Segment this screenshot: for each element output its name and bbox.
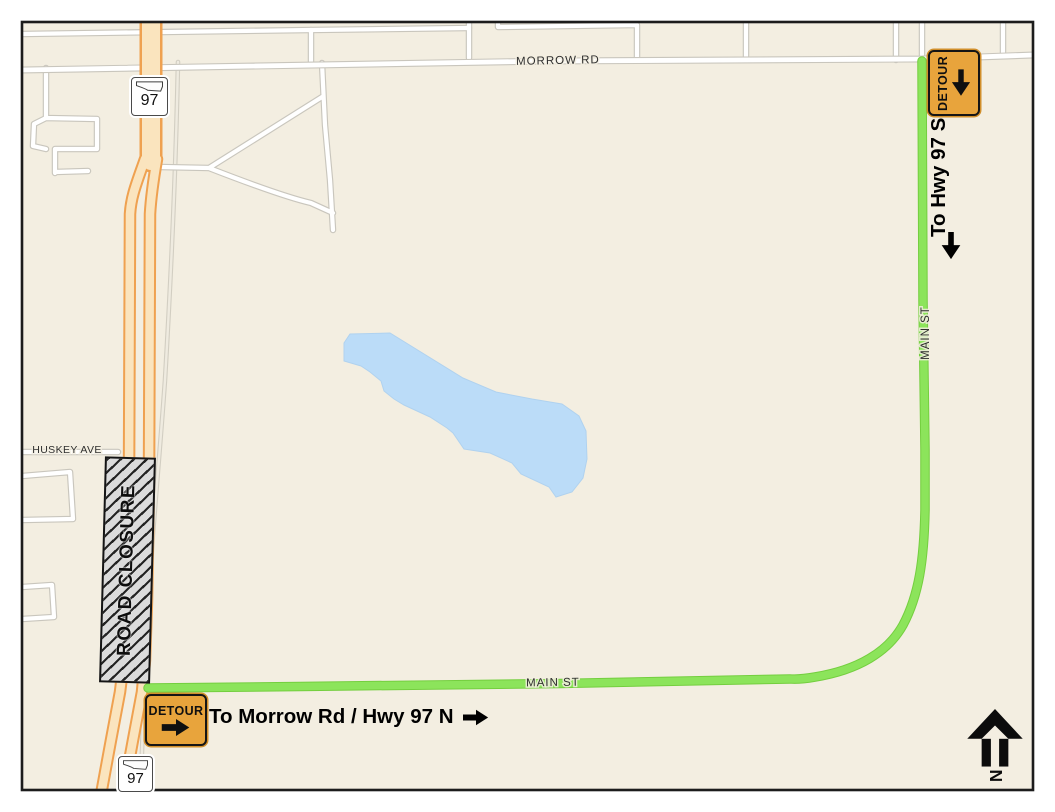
direction-north-text: To Morrow Rd / Hwy 97 N	[209, 705, 454, 729]
huskey-ave-label: HUSKEY AVE	[32, 444, 102, 456]
down-arrow-icon	[951, 67, 971, 99]
hwy-97-shield-bottom: 97	[118, 756, 153, 792]
morrow-rd-label: MORROW RD	[516, 54, 600, 68]
shield-number: 97	[141, 93, 159, 109]
right-arrow-icon	[159, 718, 193, 737]
direction-south-text: To Hwy 97 S	[926, 111, 952, 237]
direction-north: To Morrow Rd / Hwy 97 N	[209, 703, 489, 731]
road-closure-label: ROAD CLOSURE	[114, 484, 140, 657]
hwy-97-shield-top: 97	[131, 77, 168, 116]
right-arrow-icon	[463, 708, 489, 727]
shield-number: 97	[127, 771, 144, 786]
north-arrow-icon: N	[966, 708, 1024, 784]
down-arrow-icon	[940, 232, 962, 260]
detour-sign-north: DETOUR	[145, 694, 207, 746]
detour-sign-south: DETOUR	[928, 50, 980, 116]
road-closure-area: ROAD CLOSURE	[99, 456, 156, 683]
main-st-label-horizontal: MAIN ST	[526, 677, 580, 690]
road-closure-detour-map: MORROW RD MAIN ST MAIN ST HUSKEY AVE ROA…	[0, 0, 1055, 812]
detour-sign-north-label: DETOUR	[149, 705, 204, 718]
north-label: N	[986, 769, 1006, 782]
map-base: MORROW RD MAIN ST MAIN ST HUSKEY AVE	[0, 0, 1055, 812]
main-st-label-vertical: MAIN ST	[920, 306, 932, 360]
detour-sign-south-label: DETOUR	[937, 56, 950, 111]
